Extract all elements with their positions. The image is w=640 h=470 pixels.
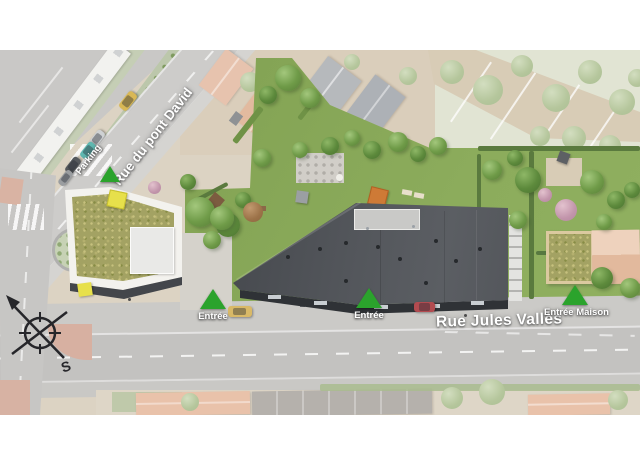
roof-vent [286, 255, 290, 259]
tree [363, 141, 381, 159]
tree [607, 191, 625, 209]
tree [292, 142, 308, 158]
yellow-parasol [106, 189, 127, 209]
house-entrance-marker-triangle [562, 285, 588, 305]
roof-ridge [211, 57, 240, 95]
bottom-margin [0, 415, 640, 470]
faded-tree [609, 89, 635, 115]
car [414, 302, 435, 312]
roof-facet-line [476, 210, 477, 300]
roof-vent [434, 239, 438, 243]
yellow-parasol [77, 282, 93, 297]
triangular-building [60, 185, 186, 317]
roof-vent [318, 247, 322, 251]
faded-tree [608, 390, 628, 410]
tree [388, 132, 408, 152]
faded-tree [181, 393, 199, 411]
tree [580, 170, 604, 194]
tree [210, 206, 234, 230]
entrance-marker-triangle [356, 288, 382, 308]
compass-north-arrow [6, 295, 20, 310]
pink-median [0, 177, 24, 206]
pink-tree [555, 199, 577, 221]
tree [203, 231, 221, 249]
roof-vent [366, 227, 369, 230]
faded-tree [511, 55, 533, 77]
tree [300, 88, 320, 108]
lane-dashes [445, 331, 635, 337]
faded-tree [440, 60, 464, 84]
garden-table [336, 174, 343, 181]
entrance-marker-label: Entrée [196, 311, 230, 322]
crosswalk [8, 204, 44, 230]
roof-vent [412, 225, 415, 228]
neighbor-house [528, 393, 610, 415]
house-entrance-marker-label: Entrée Maison [544, 307, 608, 318]
faded-tree [344, 54, 360, 70]
roof-vent [454, 259, 458, 263]
tree [180, 174, 196, 190]
entrance-marker-triangle [200, 289, 226, 309]
pink-pavement [0, 380, 30, 415]
tree [410, 146, 426, 162]
entrance-marker-label: Entrée [352, 310, 386, 321]
tree [507, 150, 523, 166]
pink-tree [148, 181, 161, 194]
faded-tree [628, 69, 640, 87]
roof-vent [398, 257, 402, 261]
tree [275, 65, 301, 91]
tree [482, 160, 502, 180]
tree [259, 86, 277, 104]
roof-vent [344, 279, 348, 283]
tree [620, 278, 640, 298]
compass-rose: S [4, 292, 76, 376]
roof-vent [424, 281, 428, 285]
tree [344, 130, 360, 146]
faded-tree [479, 379, 505, 405]
faded-tree [542, 84, 570, 112]
roof-ridge [360, 84, 390, 124]
pink-tree [538, 188, 552, 202]
neighbor-house [252, 388, 432, 415]
tree [321, 137, 339, 155]
roof-vent [376, 245, 380, 249]
tree [591, 267, 613, 289]
lane-dashes [0, 348, 640, 359]
faded-tree [399, 67, 417, 85]
rust-tree [243, 202, 263, 222]
faded-tree [441, 387, 463, 409]
roof-ridge [528, 403, 610, 406]
roof-facet-line [444, 211, 445, 303]
tree [624, 182, 640, 198]
tree [429, 137, 447, 155]
rooftop-terrace [354, 209, 420, 230]
storefront-window [314, 301, 327, 305]
site-plan: S Rue du pont David Rue Jules Vallès Par… [0, 50, 640, 415]
storefront-window [471, 301, 484, 305]
tree [596, 214, 612, 230]
compass-south-label: S [59, 357, 73, 375]
roof-vent [344, 241, 348, 245]
tree [515, 167, 541, 193]
faded-tree [473, 75, 503, 105]
faded-tree [578, 60, 602, 84]
faded-tree [530, 126, 550, 146]
roof-vent [478, 247, 482, 251]
tree [253, 149, 271, 167]
small-garden-house [546, 231, 594, 284]
parking-marker-triangle [100, 166, 120, 182]
car [228, 306, 252, 317]
roof-skylight [130, 227, 174, 274]
top-margin [0, 0, 640, 50]
storefront-window [268, 295, 281, 299]
tree [509, 211, 527, 229]
